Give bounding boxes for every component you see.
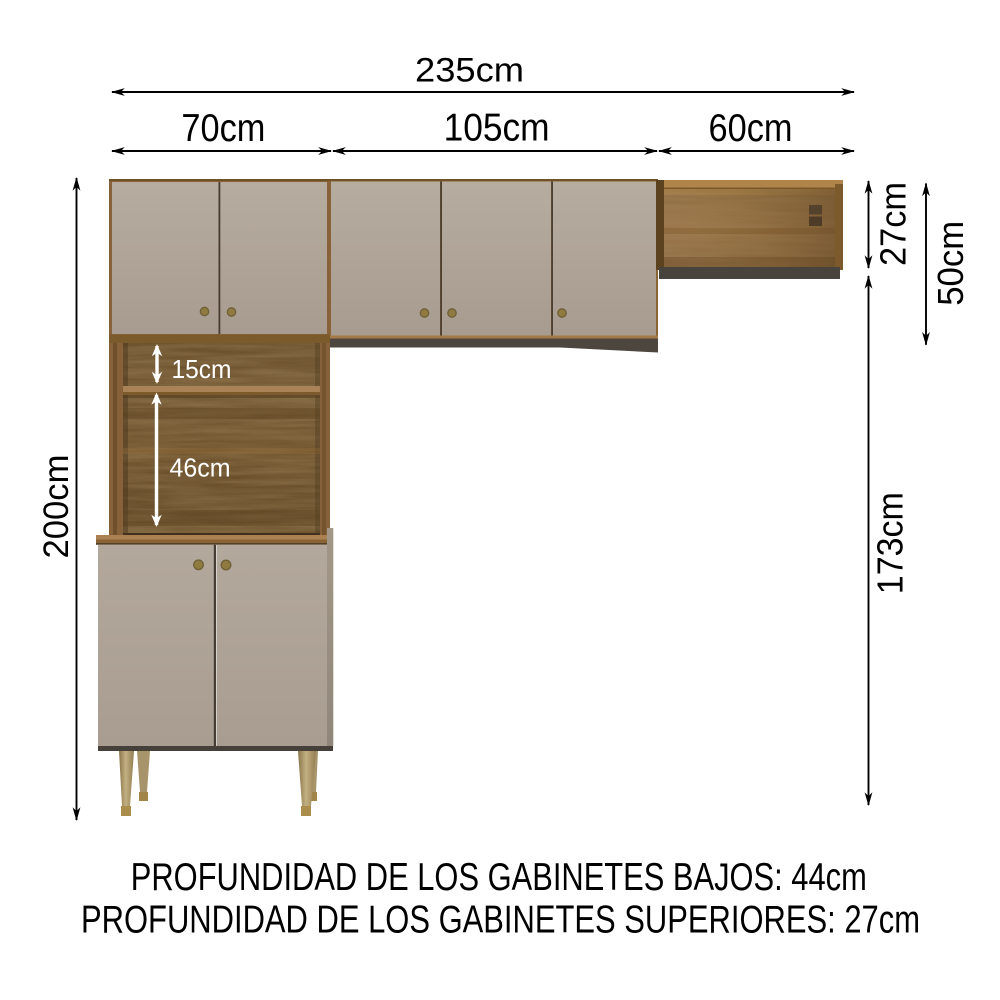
svg-text:60cm: 60cm: [709, 107, 793, 150]
svg-text:PROFUNDIDAD DE LOS GABINETES S: PROFUNDIDAD DE LOS GABINETES SUPERIORES:…: [81, 899, 920, 942]
svg-text:46cm: 46cm: [170, 453, 231, 483]
svg-text:105cm: 105cm: [444, 107, 550, 150]
svg-text:70cm: 70cm: [181, 107, 265, 150]
svg-text:173cm: 173cm: [869, 492, 910, 594]
svg-text:15cm: 15cm: [172, 354, 232, 384]
svg-text:PROFUNDIDAD DE LOS GABINETES B: PROFUNDIDAD DE LOS GABINETES BAJOS: 44cm: [131, 856, 867, 899]
svg-text:27cm: 27cm: [872, 182, 913, 266]
svg-text:235cm: 235cm: [415, 52, 524, 90]
svg-text:200cm: 200cm: [37, 455, 76, 559]
svg-text:50cm: 50cm: [930, 221, 971, 306]
